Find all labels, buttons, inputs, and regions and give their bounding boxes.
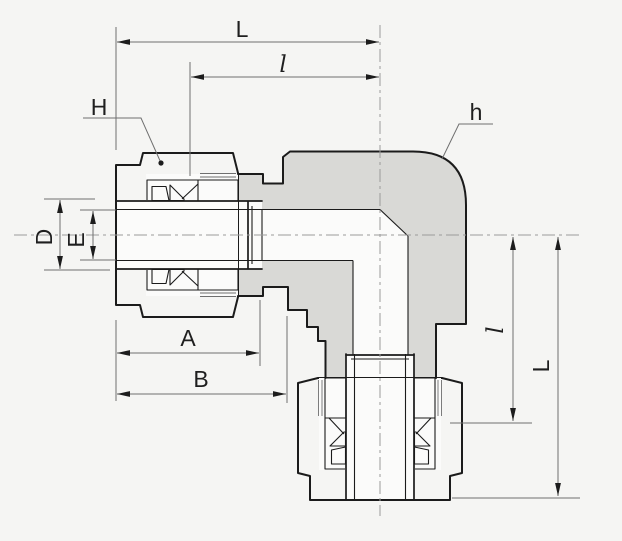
union-elbow-fitting-drawing: L l H h D E [0,0,622,541]
dim-label-L-top: L [236,16,249,42]
dim-label-L-right: L [528,359,554,372]
dim-label-l-right: l [483,326,509,333]
dim-label-h: h [470,99,483,125]
dim-label-B: B [193,366,208,392]
fitting-diagram-page: L l H h D E [0,0,622,541]
dim-label-D: D [31,229,57,246]
dim-label-E: E [63,232,89,247]
dim-label-H: H [91,94,108,120]
dim-label-l-top: l [279,52,286,78]
dim-label-A: A [180,325,196,351]
